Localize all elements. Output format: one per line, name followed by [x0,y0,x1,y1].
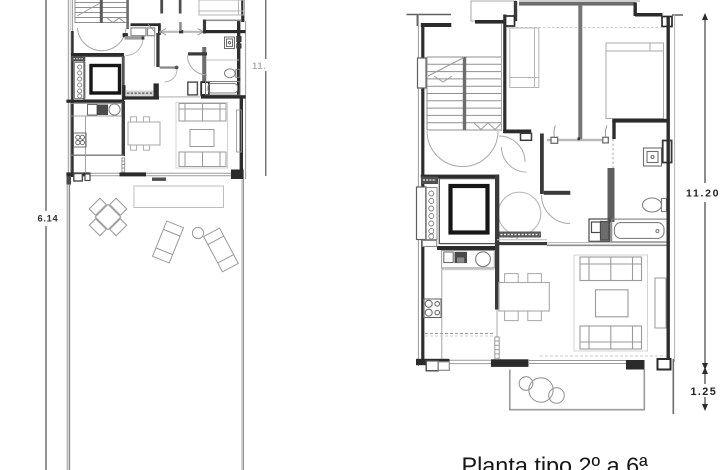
svg-text:6.14: 6.14 [38,214,59,224]
svg-text:Planta tipo 2º a 6ª: Planta tipo 2º a 6ª [462,453,649,470]
svg-text:11.20: 11.20 [686,187,720,199]
svg-text:1.25: 1.25 [691,386,718,398]
svg-text:11.: 11. [252,61,266,72]
